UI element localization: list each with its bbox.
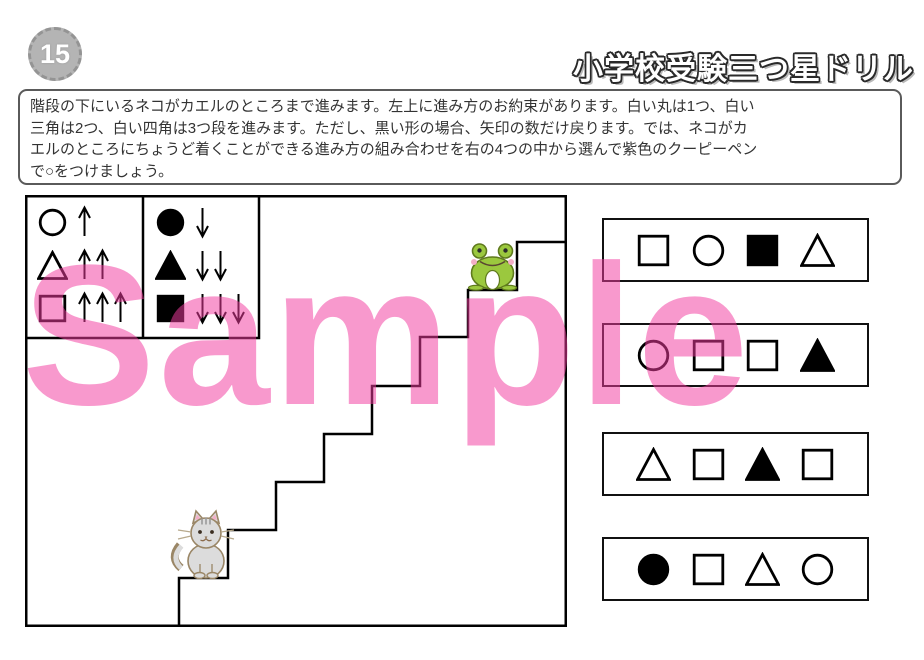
cat-image — [175, 511, 234, 579]
arrow-group — [77, 205, 92, 239]
frog-image — [469, 244, 517, 290]
arrow-group — [195, 291, 246, 325]
instruction-line: 三角は2つ、白い四角は3つ段を進みます。ただし、黒い形の場合、矢印の数だけ戻りま… — [30, 118, 890, 140]
instruction-line: 階段の下にいるネコがカエルのところまで進みます。左上に進み方のお約束があります。… — [30, 96, 890, 118]
up-arrow-icon — [77, 205, 92, 239]
black-triangle-shape — [745, 447, 780, 482]
page-title: 小学校受験三つ星ドリル — [573, 44, 914, 88]
legend-rule-white-square — [37, 290, 142, 326]
white-square-shape — [691, 338, 726, 373]
legend-rule-white-circle — [37, 204, 142, 240]
instruction-line: エルのところにちょうど着くことができる進み方の組み合わせを右の4つの中から選んで… — [30, 139, 890, 161]
answer-option-3[interactable] — [602, 432, 869, 496]
problem-number: 15 — [40, 39, 70, 70]
down-arrow-icon — [213, 291, 228, 325]
answer-option-1[interactable] — [602, 218, 869, 282]
white-square-shape — [691, 552, 726, 587]
up-arrow-icon — [77, 291, 92, 325]
up-arrow-icon — [95, 291, 110, 325]
down-arrow-icon — [231, 291, 246, 325]
white-triangle-shape — [37, 250, 68, 281]
white-square-shape — [745, 338, 780, 373]
white-triangle-shape — [745, 552, 780, 587]
legend-up-rules — [26, 196, 142, 336]
instruction-line: で○をつけましょう。 — [30, 161, 890, 183]
answer-option-4[interactable] — [602, 537, 869, 601]
white-square-shape — [37, 293, 68, 324]
black-square-shape — [155, 293, 186, 324]
answer-option-2[interactable] — [602, 323, 869, 387]
arrow-group — [77, 291, 128, 325]
problem-number-badge: 15 — [28, 27, 82, 81]
black-triangle-shape — [155, 250, 186, 281]
down-arrow-icon — [195, 291, 210, 325]
black-triangle-shape — [800, 338, 835, 373]
white-square-shape — [800, 447, 835, 482]
arrow-group — [77, 248, 110, 282]
legend-rule-black-circle — [155, 204, 258, 240]
arrow-group — [195, 248, 228, 282]
black-square-shape — [745, 233, 780, 268]
black-circle-shape — [636, 552, 671, 587]
white-square-shape — [691, 447, 726, 482]
worksheet-page: 15 小学校受験三つ星ドリル 階段の下にいるネコがカエルのところまで進みます。左… — [0, 0, 924, 660]
arrow-group — [195, 205, 210, 239]
down-arrow-icon — [213, 248, 228, 282]
white-triangle-shape — [636, 447, 671, 482]
legend-rule-black-triangle — [155, 247, 258, 283]
up-arrow-icon — [113, 291, 128, 325]
white-circle-shape — [636, 338, 671, 373]
white-circle-shape — [37, 207, 68, 238]
down-arrow-icon — [195, 205, 210, 239]
white-circle-shape — [800, 552, 835, 587]
white-triangle-shape — [800, 233, 835, 268]
white-square-shape — [636, 233, 671, 268]
up-arrow-icon — [95, 248, 110, 282]
legend-rule-white-triangle — [37, 247, 142, 283]
instruction-box: 階段の下にいるネコがカエルのところまで進みます。左上に進み方のお約束があります。… — [18, 89, 902, 185]
legend-rule-black-square — [155, 290, 258, 326]
up-arrow-icon — [77, 248, 92, 282]
white-circle-shape — [691, 233, 726, 268]
black-circle-shape — [155, 207, 186, 238]
legend-down-rules — [144, 196, 258, 336]
down-arrow-icon — [195, 248, 210, 282]
